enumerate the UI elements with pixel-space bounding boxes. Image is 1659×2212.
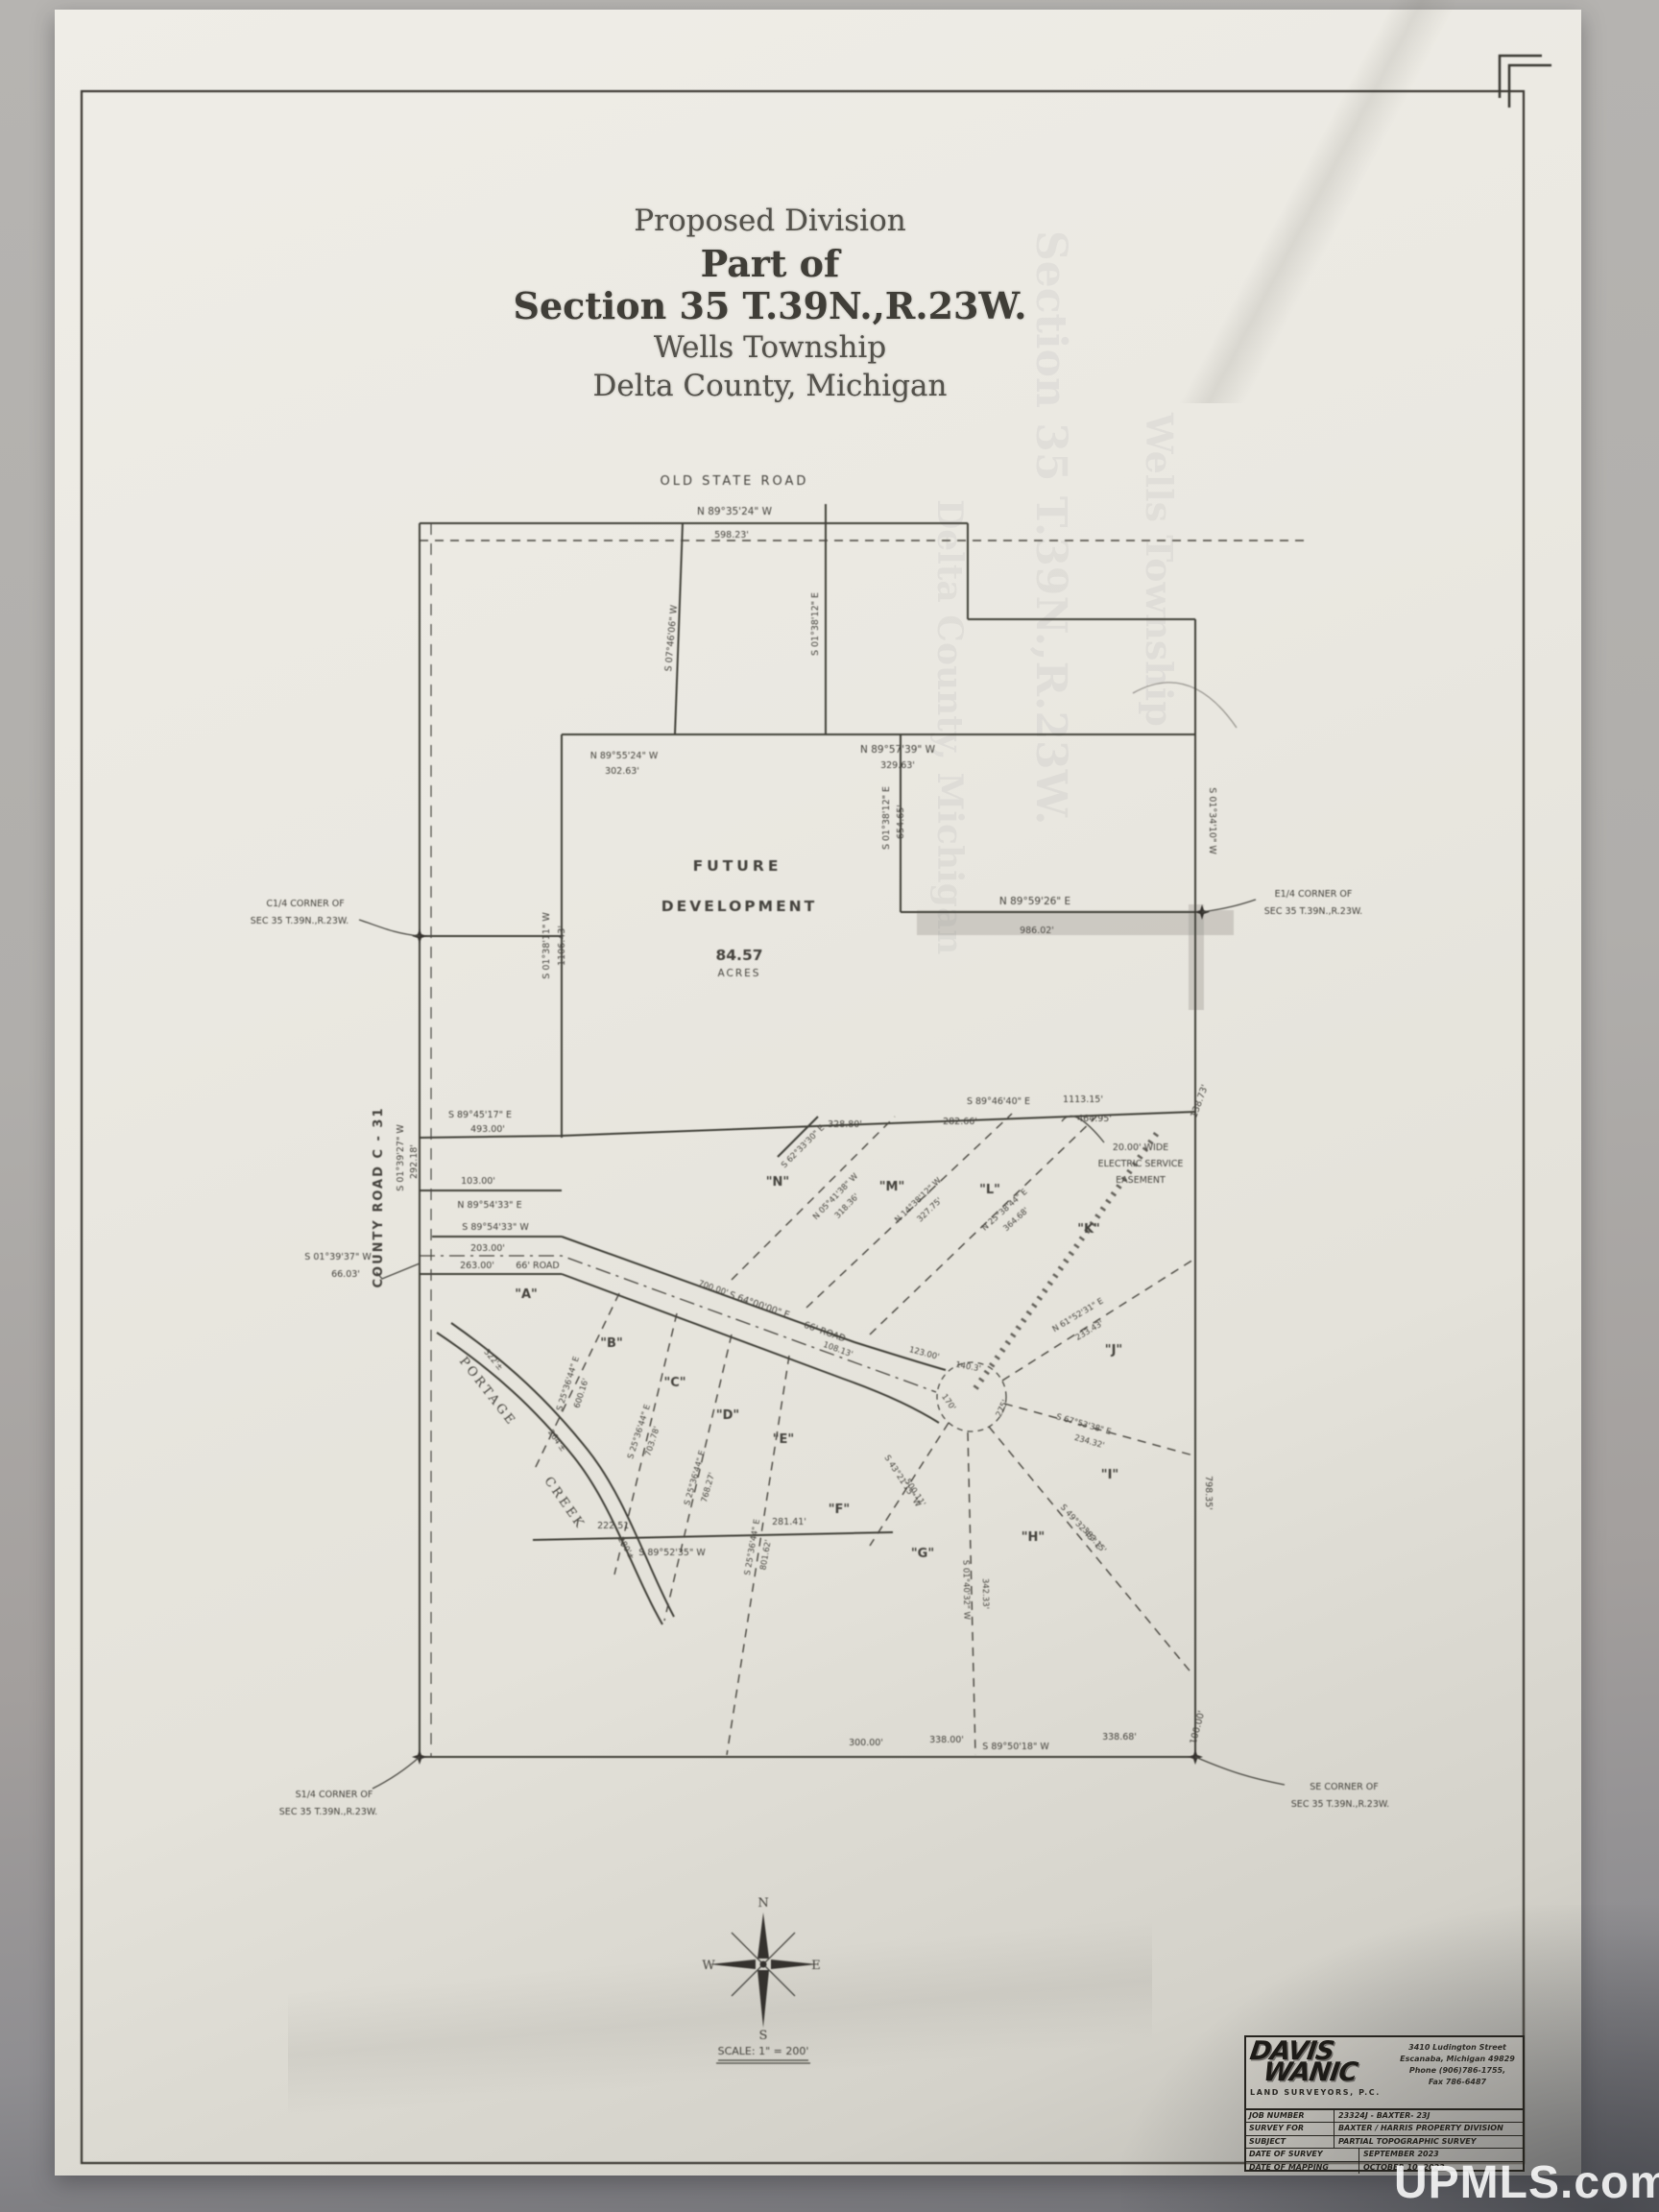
length-label: 654.65': [896, 805, 906, 839]
bearing-label: S 89°52'35" W: [638, 1548, 706, 1558]
easement-text: EASEMENT: [1116, 1175, 1166, 1186]
length-label: 234.32': [1073, 1433, 1106, 1451]
table-row: JOB NUMBER 23324J - BAXTER- 23J: [1246, 2110, 1523, 2123]
bearing-label: N 89°55'24" W: [590, 751, 659, 761]
logo-text: WANIC: [1262, 2062, 1393, 2083]
row-value: BAXTER / HARRIS PROPERTY DIVISION: [1334, 2123, 1523, 2134]
leader-line: [359, 920, 420, 936]
lot-label: "I": [1101, 1468, 1118, 1482]
bearing-label: N 89°57'39" W: [860, 744, 936, 756]
corner-label: S1/4 CORNER OF: [296, 1790, 373, 1800]
boundary-lines: [420, 504, 1195, 1757]
acreage-value: 84.57: [715, 947, 762, 964]
corner-labels: C1/4 CORNER OF SEC 35 T.39N.,R.23W. E1/4…: [251, 889, 1389, 1817]
length-label: 263.00': [460, 1261, 494, 1271]
length-label: 338.00': [929, 1735, 964, 1745]
length-label: 275': [995, 1399, 1011, 1419]
table-row: SUBJECT PARTIAL TOPOGRAPHIC SURVEY: [1246, 2136, 1523, 2149]
easement-text: ELECTRIC SERVICE: [1098, 1159, 1184, 1169]
length-label: 600.16': [572, 1378, 590, 1410]
compass-east-point: [771, 1960, 817, 1969]
road-label: OLD STATE ROAD: [661, 474, 809, 489]
address-line: Escanaba, Michigan 49829: [1392, 2054, 1523, 2065]
lot-line: [989, 1427, 1193, 1675]
length-label: 1113.15': [1063, 1094, 1103, 1105]
bearing-label: S 64°00'00" E: [728, 1289, 791, 1320]
future-development-label: FUTURE DEVELOPMENT 84.57 ACRES: [661, 857, 817, 979]
length-label: 464.95': [1077, 1114, 1112, 1124]
lot-label: "F": [829, 1503, 850, 1517]
length-label: 700.00': [697, 1279, 730, 1298]
logo-subtitle: LAND SURVEYORS, P.C.: [1250, 2088, 1392, 2097]
lot-label: "E": [773, 1432, 794, 1447]
corner-label: SEC 35 T.39N.,R.23W.: [279, 1807, 377, 1817]
length-label: 281.41': [772, 1517, 806, 1527]
bearing-label: S 89°46'40" E: [967, 1096, 1030, 1107]
length-label: 986.02': [1020, 926, 1054, 936]
corner-label: SE CORNER OF: [1310, 1782, 1378, 1792]
length-label: 328.80': [828, 1119, 862, 1130]
length-label: 302.63': [605, 766, 639, 777]
compass-rose: N E S W SCALE: 1" = 200': [702, 1896, 820, 2063]
surveyor-logo: DAVIS WANIC LAND SURVEYORS, P.C.: [1246, 2037, 1392, 2108]
row-value: PARTIAL TOPOGRAPHIC SURVEY: [1334, 2136, 1523, 2148]
dashed-lines: [420, 523, 1306, 1757]
compass-south-point: [757, 1970, 769, 2028]
lot-letters: "A" "B" "C" "D" "E" "F" "G" "H" "I" "J" …: [515, 1175, 1122, 1561]
smudge-mark: [1133, 683, 1237, 728]
bearing-label: N 89°35'24" W: [697, 506, 773, 517]
lot-line: [534, 1293, 619, 1471]
lot-label: "G": [911, 1547, 934, 1561]
row-label: DATE OF MAPPING: [1246, 2162, 1359, 2174]
parcel-line: [968, 523, 1195, 619]
lot-label: "H": [1022, 1530, 1045, 1545]
address-line: Phone (906)786-1755,: [1392, 2065, 1523, 2077]
plat-svg: OLD STATE ROAD N 89°35'24" W 598.23' S 0…: [0, 0, 1659, 2212]
bearing-label: S 01°40'32" W: [960, 1560, 971, 1621]
compass-w-label: W: [702, 1959, 715, 1973]
creek-label: PORTAGE: [456, 1355, 518, 1430]
length-label: 233.43': [1074, 1319, 1106, 1343]
lot-label: "B": [600, 1336, 622, 1351]
creek-label: CREEK: [541, 1475, 589, 1533]
compass-west-point: [709, 1960, 756, 1969]
bearing-label: S 01°38'11" W: [541, 912, 552, 979]
corner-label: C1/4 CORNER OF: [266, 899, 344, 909]
length-label: 383.15': [1080, 1526, 1108, 1555]
row-value: 23324J - BAXTER- 23J: [1334, 2110, 1523, 2122]
corner-label: SEC 35 T.39N.,R.23W.: [1264, 906, 1362, 917]
length-label: 493.00': [470, 1124, 505, 1135]
bearing-label: S 89°54'33" W: [462, 1222, 529, 1233]
lot-label: "A": [515, 1287, 538, 1302]
length-label: 338.68': [1102, 1732, 1137, 1743]
easement-text: 20.00' WIDE: [1113, 1142, 1168, 1153]
scale-label: SCALE: 1" = 200': [718, 2045, 809, 2057]
bearing-label: N 89°59'26" E: [999, 896, 1070, 907]
length-label: 798.35': [1203, 1476, 1214, 1510]
length-label: 703.78': [643, 1426, 661, 1458]
sheet-border: [82, 56, 1551, 2163]
length-label: 1106.43': [557, 926, 567, 966]
area-label: DEVELOPMENT: [661, 898, 817, 915]
bearing-label: S 67°53'38" E: [1055, 1412, 1113, 1437]
scanned-survey-photo: Section 35 T.39N.,R.23W. Wells Township …: [0, 0, 1659, 2212]
compass-n-label: N: [757, 1896, 768, 1911]
area-label: FUTURE: [693, 857, 782, 875]
row-label: SURVEY FOR: [1246, 2123, 1334, 2134]
bearing-label: S 01°39'27" W: [396, 1124, 406, 1191]
corner-label: E1/4 CORNER OF: [1275, 889, 1353, 900]
lot-label: "D": [716, 1408, 739, 1423]
length-label: 329.63': [880, 760, 915, 771]
length-label: 342.33': [980, 1578, 991, 1609]
bearing-label: S 01°39'37" W: [304, 1252, 372, 1262]
creek-length-label: 264'±: [545, 1428, 567, 1454]
table-row: SURVEY FOR BAXTER / HARRIS PROPERTY DIVI…: [1246, 2123, 1523, 2135]
lot-label: "C": [663, 1376, 685, 1390]
length-label: 103.00': [461, 1176, 495, 1187]
length-label: 100.00': [1189, 1710, 1208, 1745]
corner-registration-mark: [1500, 56, 1551, 108]
compass-center: [760, 1961, 767, 1968]
bearing-label: S 01°34'10" W: [1207, 787, 1217, 854]
bearing-label: N 89°54'33" E: [457, 1200, 521, 1211]
bearing-label: S 89°45'17" E: [448, 1110, 512, 1120]
acreage-unit: ACRES: [718, 968, 761, 979]
bearing-label: S 01°38'12" E: [881, 786, 892, 850]
compass-north-point: [757, 1912, 769, 1959]
road-label: COUNTY ROAD C - 31: [372, 1106, 386, 1287]
corner-label: SEC 35 T.39N.,R.23W.: [1291, 1799, 1389, 1810]
corner-label: SEC 35 T.39N.,R.23W.: [251, 916, 349, 926]
length-label: 138.73': [1189, 1083, 1211, 1118]
length-label: 292.18': [409, 1144, 420, 1179]
length-label: 203.00': [470, 1243, 505, 1254]
leader-line: [373, 1757, 420, 1789]
easement-label: 20.00' WIDE ELECTRIC SERVICE EASEMENT: [1098, 1142, 1184, 1186]
surveyor-address: 3410 Ludington Street Escanaba, Michigan…: [1392, 2037, 1523, 2108]
address-line: Fax 786-6487: [1392, 2077, 1523, 2088]
row-label: SUBJECT: [1246, 2136, 1334, 2148]
length-label: 108.13': [822, 1340, 854, 1359]
length-label: 300.00': [849, 1738, 883, 1748]
length-label: 66.03': [331, 1269, 360, 1280]
compass-e-label: E: [811, 1959, 821, 1973]
address-line: 3410 Ludington Street: [1392, 2042, 1523, 2054]
length-label: 282.66': [943, 1117, 977, 1127]
compass-s-label: S: [759, 2029, 768, 2043]
lot-label: "N": [766, 1175, 789, 1190]
surveyor-title-block: DAVIS WANIC LAND SURVEYORS, P.C. 3410 Lu…: [1244, 2035, 1525, 2172]
road-width-label: 66' ROAD: [516, 1261, 559, 1271]
length-label: 170': [939, 1392, 957, 1412]
length-label: 140.3': [954, 1360, 981, 1374]
length-label: 768.27': [700, 1472, 717, 1504]
length-label: 598.23': [714, 530, 749, 541]
bearing-label: S 89°50'18" W: [982, 1742, 1049, 1752]
bearing-label: S 01°38'12" E: [810, 592, 821, 656]
row-label: JOB NUMBER: [1246, 2110, 1334, 2122]
leader-line: [1195, 1757, 1285, 1785]
length-label: 222.51': [597, 1521, 632, 1531]
section-corners: [359, 900, 1285, 1789]
surveyor-header: DAVIS WANIC LAND SURVEYORS, P.C. 3410 Lu…: [1246, 2037, 1523, 2110]
lot-label: "K": [1077, 1222, 1100, 1237]
row-label: DATE OF SURVEY: [1246, 2149, 1359, 2160]
length-label: 801.62': [758, 1539, 773, 1571]
upmls-watermark: UPMLS.com: [1394, 2156, 1659, 2209]
lot-label: "L": [979, 1183, 1000, 1197]
highlight-smudge: [917, 910, 1234, 935]
lot-label: "M": [879, 1180, 904, 1194]
lot-label: "J": [1105, 1343, 1122, 1358]
scale-underline: [716, 2060, 810, 2063]
lot-f-south-line: [533, 1532, 893, 1540]
